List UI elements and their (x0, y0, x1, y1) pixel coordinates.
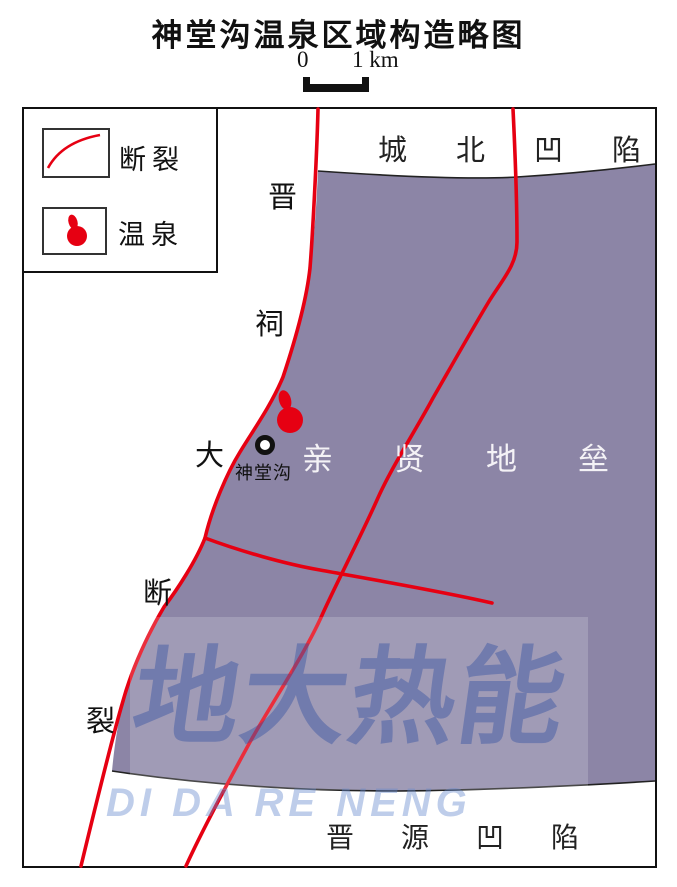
legend-fault-symbol-box (42, 128, 110, 178)
region-label-south-sag: 晋源凹陷 (326, 816, 626, 856)
region-label-horst: 亲贤地垒 (302, 434, 670, 479)
fault-line-icon (44, 130, 104, 172)
fault-name-char-3: 大 (195, 432, 224, 474)
figure-title: 神堂沟温泉区域构造略图 (0, 10, 677, 55)
legend-fault-label: 断裂 (119, 138, 185, 177)
fault-name-char-5: 裂 (86, 698, 115, 740)
fault-name-char-4: 断 (143, 570, 172, 612)
spring-point-label: 神堂沟 (235, 459, 292, 485)
legend-box: 断裂 温泉 (22, 107, 218, 273)
legend-spring-label: 温泉 (118, 213, 184, 252)
scale-start-label: 0 (297, 47, 309, 73)
figure-page: 神堂沟温泉区域构造略图 0 1 km 地大热能 DI DA RE NENG 城北… (0, 0, 677, 887)
legend-spring-symbol-box (42, 207, 107, 255)
scale-bar (303, 77, 369, 92)
fault-name-char-2: 祠 (255, 301, 284, 343)
watermark-cn-text: 地大热能 (125, 638, 612, 760)
fault-name-char-1: 晋 (268, 174, 297, 216)
hot-spring-icon (44, 209, 101, 249)
region-label-north-sag: 城北凹陷 (378, 127, 677, 169)
scale-end-label: 1 km (352, 47, 399, 73)
